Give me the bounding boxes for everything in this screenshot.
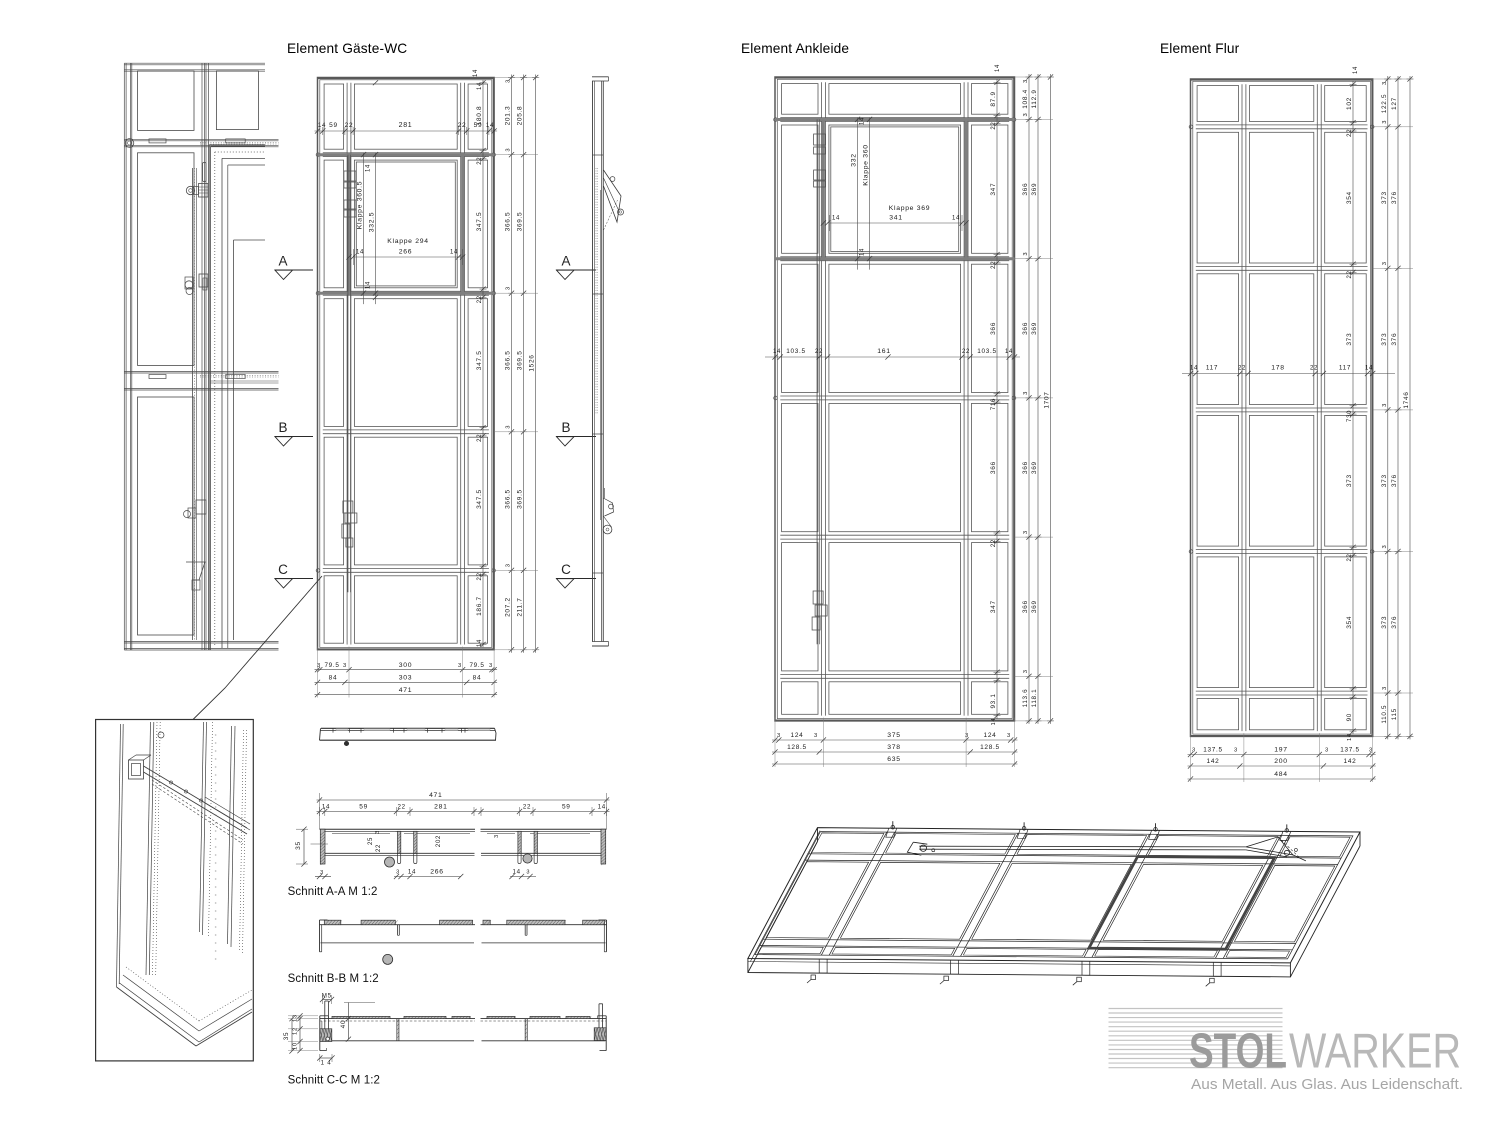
svg-text:376: 376 [1391,333,1398,346]
svg-text:347: 347 [990,600,997,613]
svg-text:142: 142 [1344,758,1357,765]
svg-text:79.5: 79.5 [469,662,484,669]
svg-text:3: 3 [1382,120,1388,124]
svg-text:22: 22 [477,434,483,442]
svg-text:3: 3 [375,830,381,834]
svg-text:3: 3 [396,870,400,876]
svg-text:102: 102 [1346,97,1353,110]
svg-text:B: B [561,420,570,435]
svg-text:117: 117 [1339,365,1351,372]
svg-text:59: 59 [359,804,368,811]
svg-text:112.9: 112.9 [1031,89,1038,108]
svg-text:1707: 1707 [1044,391,1051,408]
svg-text:90: 90 [1346,713,1353,721]
svg-text:3: 3 [1382,81,1388,85]
svg-text:3: 3 [1023,391,1029,395]
svg-text:22: 22 [397,804,405,811]
svg-text:118.1: 118.1 [1031,689,1038,708]
svg-text:207.2: 207.2 [505,597,512,617]
svg-text:22: 22 [477,157,483,165]
svg-text:1 4: 1 4 [321,1060,332,1067]
svg-text:369.5: 369.5 [517,350,524,370]
svg-text:366.5: 366.5 [505,350,512,370]
svg-text:84: 84 [329,675,338,682]
svg-text:22: 22 [815,349,823,355]
svg-text:366.5: 366.5 [505,489,512,509]
svg-text:347.5: 347.5 [476,350,483,370]
svg-text:369: 369 [1031,322,1038,335]
svg-text:Klappe 294: Klappe 294 [387,238,428,245]
svg-text:354: 354 [1346,616,1353,629]
svg-text:115: 115 [1391,708,1398,720]
svg-text:332.5: 332.5 [369,212,376,233]
svg-text:14: 14 [477,82,483,90]
svg-text:369.5: 369.5 [517,489,524,509]
svg-text:10: 10 [293,1042,299,1050]
svg-text:22: 22 [1347,553,1353,561]
svg-text:3: 3 [506,286,512,290]
svg-text:14: 14 [773,349,781,355]
svg-text:341: 341 [889,215,902,222]
svg-text:373: 373 [1381,333,1388,346]
svg-text:124: 124 [791,732,804,739]
svg-text:366: 366 [1022,461,1029,474]
svg-text:180.8: 180.8 [476,106,483,126]
svg-text:14: 14 [408,869,416,876]
svg-text:3: 3 [1192,748,1196,754]
svg-text:14: 14 [860,248,866,256]
svg-text:3: 3 [489,663,493,669]
svg-text:14: 14 [1353,66,1359,74]
svg-text:200: 200 [1274,758,1287,765]
svg-text:14: 14 [322,804,330,811]
svg-text:B: B [278,420,287,435]
svg-text:3: 3 [1023,79,1029,83]
svg-text:110.5: 110.5 [1381,705,1388,724]
svg-text:14: 14 [832,216,840,222]
svg-text:3: 3 [526,870,530,876]
svg-text:14: 14 [995,64,1001,72]
svg-text:22: 22 [477,572,483,580]
svg-text:22: 22 [376,844,382,852]
svg-text:14: 14 [1365,366,1373,372]
svg-text:C: C [278,562,288,577]
svg-text:366: 366 [1022,183,1029,196]
svg-text:14: 14 [1005,349,1013,355]
svg-text:13: 13 [293,1014,299,1022]
svg-text:59: 59 [329,122,338,129]
svg-text:375: 375 [887,732,900,739]
svg-text:14: 14 [366,281,372,289]
svg-text:373: 373 [1381,474,1388,487]
svg-text:22: 22 [523,804,531,811]
svg-text:14: 14 [356,250,364,256]
svg-text:3: 3 [506,425,512,429]
svg-text:40: 40 [340,1020,347,1029]
svg-text:22: 22 [1238,366,1246,372]
svg-text:103.5: 103.5 [786,348,806,355]
svg-text:366.5: 366.5 [505,212,512,232]
svg-text:14: 14 [512,869,520,876]
svg-text:22: 22 [477,295,483,303]
svg-text:14: 14 [450,250,458,256]
svg-text:3: 3 [506,79,512,83]
svg-text:266: 266 [430,869,443,876]
svg-text:484: 484 [1274,771,1287,778]
svg-text:3: 3 [1382,403,1388,407]
svg-text:Klappe 360: Klappe 360 [863,144,870,185]
svg-text:3: 3 [1382,686,1388,690]
svg-text:347: 347 [990,183,997,196]
svg-text:300: 300 [399,662,412,669]
svg-text:3: 3 [494,834,500,838]
svg-text:202: 202 [436,835,442,847]
svg-text:366: 366 [990,322,997,335]
svg-text:373: 373 [1346,474,1353,487]
svg-text:128.5: 128.5 [787,744,807,751]
svg-text:3: 3 [1023,669,1029,673]
svg-text:3: 3 [1382,545,1388,549]
svg-text:Schnitt B-B M 1:2: Schnitt B-B M 1:2 [288,973,379,985]
svg-text:Schnitt C-C M 1:2: Schnitt C-C M 1:2 [288,1075,380,1087]
svg-text:84: 84 [473,675,482,682]
svg-text:22: 22 [991,539,997,547]
svg-text:369: 369 [1031,600,1038,613]
svg-text:3: 3 [965,733,969,739]
svg-text:376: 376 [1391,191,1398,204]
svg-text:369: 369 [1031,183,1038,196]
svg-text:373: 373 [1381,616,1388,629]
svg-text:14: 14 [473,69,479,77]
svg-text:369.5: 369.5 [517,212,524,232]
svg-text:14: 14 [1347,733,1353,741]
svg-text:3: 3 [1023,530,1029,534]
svg-text:STOL: STOL [1189,1025,1287,1079]
svg-text:22: 22 [345,122,354,129]
svg-text:59: 59 [562,804,571,811]
svg-text:22: 22 [962,349,970,355]
svg-text:730: 730 [1347,410,1353,422]
svg-text:373: 373 [1381,191,1388,204]
svg-text:3: 3 [343,663,347,669]
svg-text:Element Ankleide: Element Ankleide [741,41,849,56]
svg-text:471: 471 [429,792,442,799]
svg-text:137.5: 137.5 [1340,747,1360,754]
svg-text:14: 14 [366,164,372,172]
svg-text:14: 14 [477,639,483,647]
svg-text:3: 3 [777,733,781,739]
svg-text:378: 378 [887,744,900,751]
svg-text:Klappe 360.5: Klappe 360.5 [357,181,364,229]
svg-text:A: A [561,254,570,269]
svg-text:178: 178 [1271,365,1284,372]
svg-text:347.5: 347.5 [476,212,483,232]
svg-text:366: 366 [990,461,997,474]
svg-text:3: 3 [1023,252,1029,256]
svg-text:266: 266 [399,249,412,256]
svg-text:22: 22 [991,122,997,130]
svg-text:3: 3 [1007,733,1011,739]
svg-text:137.5: 137.5 [1203,747,1223,754]
svg-text:Klappe 369: Klappe 369 [889,205,930,212]
svg-text:3: 3 [506,563,512,567]
svg-text:127: 127 [1391,97,1398,110]
svg-text:Element Flur: Element Flur [1160,41,1240,56]
svg-text:376: 376 [1391,474,1398,487]
svg-text:3: 3 [1023,113,1029,117]
svg-text:1746: 1746 [1403,391,1410,408]
svg-text:3: 3 [1234,748,1238,754]
svg-text:369: 369 [1031,461,1038,474]
svg-text:3: 3 [320,870,324,876]
svg-text:124: 124 [984,732,997,739]
svg-text:366: 366 [1022,322,1029,335]
svg-text:Aus Metall. Aus Glas. Aus Leid: Aus Metall. Aus Glas. Aus Leidenschaft. [1191,1077,1463,1093]
svg-text:22: 22 [991,261,997,269]
svg-text:Schnitt A-A M 1:2: Schnitt A-A M 1:2 [288,886,378,898]
svg-text:3: 3 [458,663,462,669]
svg-text:12: 12 [293,1027,299,1035]
svg-text:22: 22 [1347,129,1353,137]
svg-text:3: 3 [1369,748,1373,754]
svg-text:79.5: 79.5 [324,662,339,669]
svg-text:22: 22 [1347,270,1353,278]
svg-text:117: 117 [1206,365,1218,372]
svg-text:93.1: 93.1 [990,693,997,708]
svg-text:122.5: 122.5 [1381,94,1388,114]
svg-text:142: 142 [1207,758,1220,765]
svg-text:14: 14 [1190,366,1198,372]
svg-text:373: 373 [1346,333,1353,346]
svg-text:211.7: 211.7 [517,597,524,616]
svg-text:281: 281 [399,122,413,129]
svg-text:354: 354 [1346,191,1353,204]
svg-text:14: 14 [486,122,494,129]
svg-text:332: 332 [851,153,858,166]
svg-text:347.5: 347.5 [476,489,483,509]
svg-text:Element Gäste-WC: Element Gäste-WC [287,41,407,56]
svg-text:14: 14 [991,718,997,726]
svg-text:35: 35 [295,841,302,850]
svg-text:3: 3 [1382,261,1388,265]
svg-text:14: 14 [318,122,326,129]
svg-text:197: 197 [1274,747,1287,754]
svg-text:303: 303 [399,675,412,682]
svg-text:376: 376 [1391,616,1398,629]
svg-text:716: 716 [991,398,997,410]
svg-text:1526: 1526 [529,354,536,371]
svg-text:103.5: 103.5 [977,348,997,355]
svg-text:C: C [561,562,571,577]
svg-text:108.4: 108.4 [1022,89,1029,109]
svg-text:113.6: 113.6 [1022,689,1029,708]
svg-text:35: 35 [283,1032,290,1040]
svg-text:201.3: 201.3 [505,106,512,126]
svg-text:3: 3 [506,148,512,152]
svg-text:3: 3 [1325,748,1329,754]
svg-text:128.5: 128.5 [980,744,1000,751]
svg-text:87.9: 87.9 [990,91,997,106]
svg-text:22: 22 [458,122,467,129]
svg-text:14: 14 [860,117,866,125]
svg-text:366: 366 [1022,600,1029,613]
svg-text:14: 14 [952,216,960,222]
svg-text:161: 161 [877,348,890,355]
svg-text:3: 3 [814,733,818,739]
svg-text:WARKER: WARKER [1289,1025,1461,1079]
svg-text:281: 281 [434,804,447,811]
svg-text:186.7: 186.7 [476,596,483,616]
svg-text:471: 471 [399,687,412,694]
svg-text:A: A [278,254,287,269]
svg-text:25: 25 [368,837,374,845]
svg-text:205.8: 205.8 [517,106,524,126]
svg-text:22: 22 [1310,366,1318,372]
svg-text:635: 635 [887,756,900,763]
svg-text:14: 14 [598,804,606,811]
